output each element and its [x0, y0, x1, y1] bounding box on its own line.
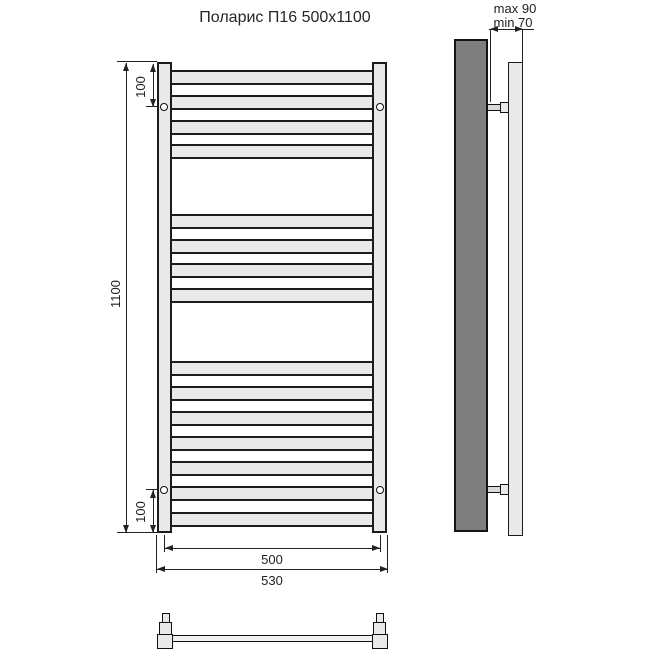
towel-bar	[170, 263, 374, 278]
extension-line	[387, 535, 388, 573]
side-wall-strip	[508, 62, 523, 536]
mount-screw-icon	[160, 103, 168, 111]
mount-screw-icon	[160, 486, 168, 494]
towel-bar	[170, 95, 374, 110]
towel-bar	[170, 288, 374, 303]
drawing-title: Поларис П16 500x1100	[160, 9, 410, 27]
dim-label-bottom-offset: 100	[134, 492, 148, 532]
right-fitting-body	[373, 622, 386, 635]
towel-bar	[170, 144, 374, 159]
collector-tube	[172, 635, 374, 642]
dim-line	[157, 569, 388, 570]
dim-label-top-offset: 100	[134, 67, 148, 107]
front-left-post	[157, 62, 172, 533]
extension-line	[164, 535, 165, 552]
left-fitting-nipple	[162, 613, 170, 623]
arrow-left-icon	[157, 566, 165, 572]
towel-bar	[170, 386, 374, 401]
towel-bar	[170, 70, 374, 85]
dim-label-wall-max: max 90	[486, 1, 544, 16]
towel-bar	[170, 411, 374, 426]
towel-bar	[170, 214, 374, 229]
towel-bar	[170, 120, 374, 135]
right-fitting-nipple	[376, 613, 384, 623]
towel-bar	[170, 361, 374, 376]
towel-bar	[170, 239, 374, 254]
extension-line	[156, 535, 157, 573]
dim-label-overall-width: 530	[252, 573, 292, 588]
arrow-up-icon	[150, 64, 156, 72]
extension-line	[117, 61, 157, 62]
right-fitting-base	[372, 634, 388, 649]
wall-bracket-plate	[500, 102, 509, 113]
dim-label-axis-width: 500	[252, 552, 292, 567]
dim-label-height: 1100	[109, 274, 123, 314]
dim-line	[126, 63, 127, 533]
technical-drawing: Поларис П16 500x1100 1100 100 100	[0, 0, 650, 650]
dim-line	[165, 548, 380, 549]
towel-bar	[170, 512, 374, 527]
left-fitting-base	[157, 634, 173, 649]
arrow-left-icon	[490, 26, 498, 32]
extension-line	[490, 30, 491, 102]
front-right-post	[372, 62, 387, 533]
mount-screw-icon	[376, 486, 384, 494]
extension-line	[522, 30, 523, 62]
towel-bar	[170, 436, 374, 451]
towel-bar	[170, 461, 374, 476]
extension-line	[380, 535, 381, 552]
arrow-down-icon	[150, 525, 156, 533]
side-radiator-profile	[454, 39, 488, 532]
arrow-left-icon	[165, 545, 173, 551]
mount-screw-icon	[376, 103, 384, 111]
arrow-right-icon	[372, 545, 380, 551]
arrow-up-icon	[150, 490, 156, 498]
wall-bracket-plate	[500, 484, 509, 495]
arrow-up-icon	[123, 63, 129, 71]
left-fitting-body	[159, 622, 172, 635]
towel-bar	[170, 486, 374, 501]
